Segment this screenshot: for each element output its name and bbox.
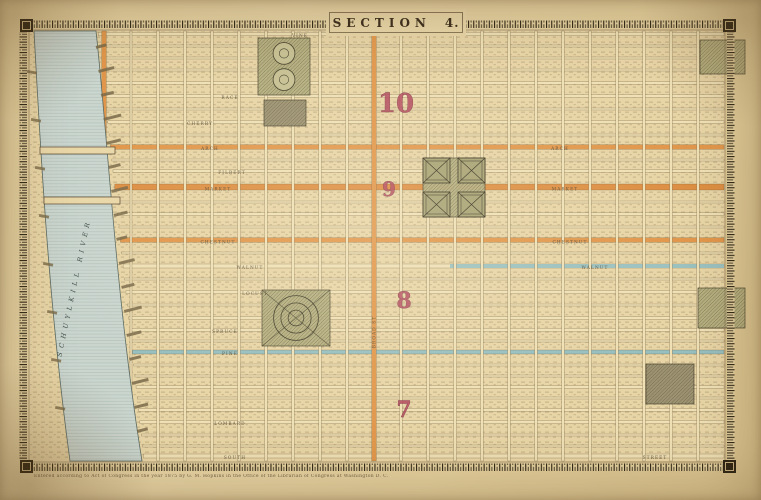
street-vertical (211, 31, 214, 461)
street-horizontal (142, 445, 724, 447)
district-number-9: 9 (382, 177, 396, 201)
street-label: LOCUST (242, 292, 268, 297)
street-vertical (508, 31, 511, 461)
street-horizontal (125, 278, 724, 280)
street-horizontal (104, 82, 724, 85)
cathedral-block (264, 100, 306, 126)
street-vertical (697, 31, 700, 461)
corner-ornament (723, 460, 736, 473)
street-label: SOUTH (224, 456, 246, 461)
district-number-7: 7 (396, 397, 411, 423)
street-label: BROAD ST (372, 316, 377, 348)
street-horizontal (139, 409, 724, 412)
bridge (40, 147, 115, 154)
street-vertical (454, 31, 457, 461)
bridge (44, 197, 120, 204)
street-horizontal (136, 386, 724, 389)
street-vertical (535, 31, 538, 461)
border-ruler-left (20, 32, 28, 460)
street-label: VINE (291, 34, 308, 39)
street-horizontal (141, 434, 724, 436)
street-vertical (481, 31, 484, 461)
street-vertical (292, 31, 295, 461)
street-label: RACE (221, 96, 238, 101)
corner-ornament (20, 460, 33, 473)
district-number-8: 8 (396, 288, 411, 314)
street-label: SPRUCE (212, 330, 238, 335)
logan-square (258, 38, 310, 95)
border-ruler-bottom (33, 464, 723, 472)
park-northeast (700, 40, 745, 74)
copyright-imprint: Entered according to Act of Congress in … (34, 474, 579, 479)
street-vertical (589, 31, 592, 461)
district-number-10: 10 (378, 89, 414, 119)
street-vertical (427, 31, 430, 461)
street-label: WALNUT (236, 266, 263, 271)
street-horizontal (126, 291, 724, 294)
street-horizontal (118, 213, 724, 216)
street-vertical (184, 31, 187, 461)
street-horizontal (113, 170, 724, 173)
street-horizontal (102, 69, 724, 71)
street-label: ARCH (200, 147, 219, 152)
street-horizontal (129, 317, 724, 320)
street-label: CHESTNUT (200, 240, 235, 245)
street-horizontal (119, 226, 724, 228)
street-horizontal (106, 108, 724, 110)
street-vertical (372, 31, 377, 461)
street-label: LOMBARD (214, 422, 245, 427)
street-horizontal (109, 134, 724, 136)
street-horizontal (112, 159, 724, 161)
atlas-plate: SCHUYLKILL RIVERVINERACECHERRYARCHARCHFI… (0, 0, 761, 500)
street-vertical (562, 31, 565, 461)
street-horizontal (105, 95, 724, 98)
street-vertical (265, 31, 268, 461)
corner-ornament (20, 19, 33, 32)
map-canvas: SCHUYLKILL RIVERVINERACECHERRYARCHARCHFI… (0, 0, 761, 500)
street-horizontal (137, 397, 724, 399)
street-label: CHERRY (187, 122, 213, 127)
street-horizontal (127, 304, 724, 306)
street-label: MARKET (205, 187, 232, 192)
street-horizontal (101, 57, 724, 59)
rittenhouse-square (262, 290, 330, 346)
street-vertical (346, 31, 349, 461)
border-ruler-right (727, 32, 735, 460)
street-label: PINE (222, 352, 238, 357)
street-horizontal (100, 45, 724, 47)
section-title-word: SECTION (333, 16, 431, 30)
street-vertical (643, 31, 646, 461)
street-horizontal (116, 201, 724, 203)
park-east (698, 288, 745, 328)
street-label: CHESTNUT (552, 240, 587, 245)
street-label: FILBERT (218, 171, 246, 176)
street-vertical (319, 31, 322, 461)
street-vertical (157, 31, 160, 461)
street-label: MARKET (552, 187, 579, 192)
corner-ornament (723, 19, 736, 32)
institution-block (646, 364, 694, 404)
section-number: 4. (445, 16, 460, 30)
street-vertical (616, 31, 619, 461)
street-label: STREET (643, 456, 668, 461)
street-label: ARCH (550, 147, 569, 152)
street-label: WALNUT (581, 266, 608, 271)
map-title: SECTION 4. (329, 12, 463, 33)
penn-square (423, 158, 485, 217)
